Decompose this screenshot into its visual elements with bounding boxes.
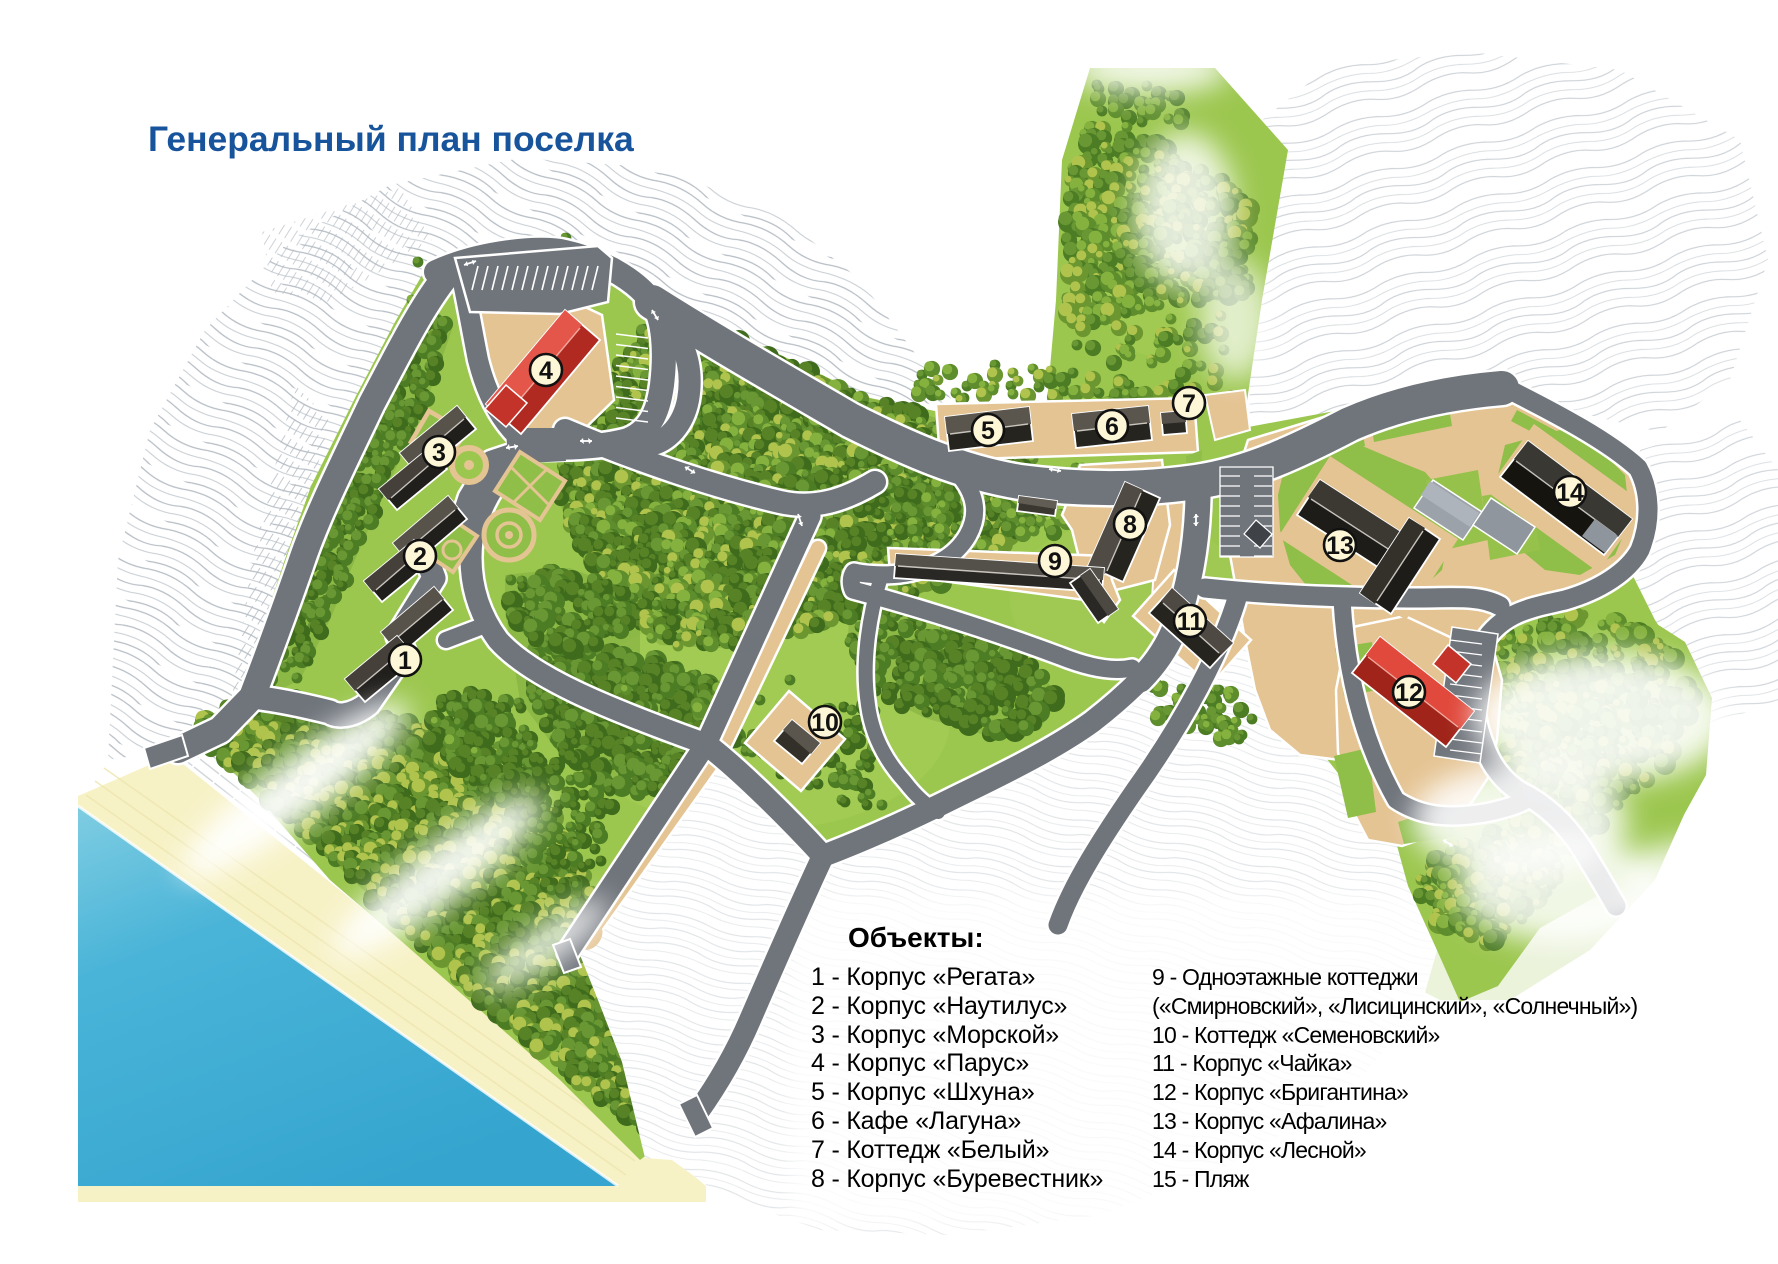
svg-text:5: 5 — [981, 417, 995, 445]
svg-text:10: 10 — [811, 709, 839, 737]
svg-text:9: 9 — [1048, 548, 1062, 576]
svg-text:6: 6 — [1105, 413, 1119, 441]
svg-text:4: 4 — [539, 357, 553, 385]
svg-text:7: 7 — [1182, 390, 1196, 418]
svg-text:13: 13 — [1326, 532, 1354, 560]
svg-text:11: 11 — [1177, 608, 1204, 636]
svg-text:12: 12 — [1395, 679, 1423, 707]
svg-text:14: 14 — [1556, 479, 1584, 507]
svg-text:3: 3 — [432, 439, 446, 467]
svg-text:1: 1 — [398, 647, 412, 675]
svg-text:8: 8 — [1123, 511, 1137, 539]
svg-text:2: 2 — [413, 543, 427, 571]
